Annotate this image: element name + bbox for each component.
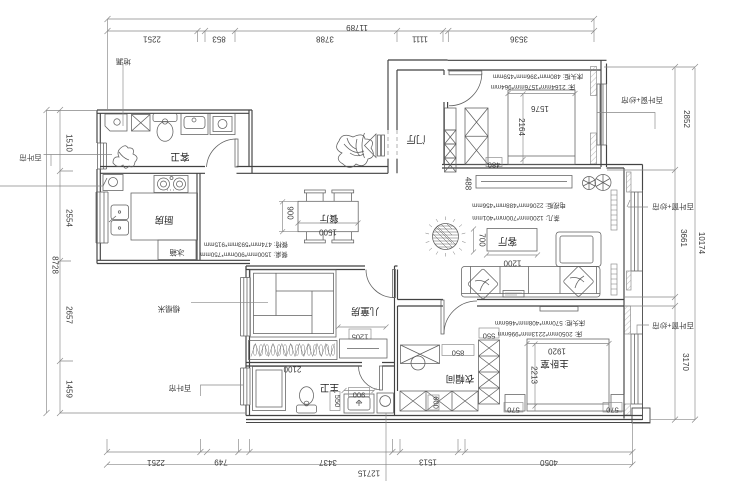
svg-text:2251: 2251 [143,35,161,44]
svg-text:2251: 2251 [147,458,165,467]
svg-text:12715: 12715 [357,469,380,478]
svg-text:2213: 2213 [530,366,539,384]
svg-text:900: 900 [353,391,366,400]
svg-text:10174: 10174 [697,232,706,255]
svg-text:2657: 2657 [65,306,74,324]
svg-text:门厅: 门厅 [406,133,426,145]
svg-text:客厅: 客厅 [498,235,518,247]
svg-text:百叶帘: 百叶帘 [19,153,42,163]
svg-text:1205: 1205 [352,333,369,342]
svg-text:550: 550 [333,395,342,408]
svg-text:百叶窗+纱帘: 百叶窗+纱帘 [652,202,694,212]
svg-text:床: 2050mm*2213mm*996mm: 床: 2050mm*2213mm*996mm [498,330,583,339]
svg-text:1459: 1459 [65,380,74,398]
svg-text:儿童房: 儿童房 [351,305,380,317]
svg-text:700: 700 [478,233,487,247]
svg-text:2164: 2164 [517,118,526,136]
svg-text:3437: 3437 [319,458,337,467]
svg-text:550: 550 [483,332,496,341]
svg-text:3788: 3788 [316,35,334,44]
svg-text:3170: 3170 [681,353,690,371]
svg-text:厨房: 厨房 [154,214,173,226]
svg-text:床: 2164mm*1576mm*964mm: 床: 2164mm*1576mm*964mm [491,83,576,92]
svg-text:百叶窗+纱帘: 百叶窗+纱帘 [621,96,663,106]
svg-text:1576: 1576 [531,104,549,113]
svg-text:餐椅: 474mm*593mm*915mm: 餐椅: 474mm*593mm*915mm [204,241,288,250]
svg-text:488: 488 [464,177,473,191]
svg-text:茶几: 1200mm*700mm*401mm: 茶几: 1200mm*700mm*401mm [472,214,560,223]
svg-text:电视柜: 2206mm*488mm*456mm: 电视柜: 2206mm*488mm*456mm [472,202,566,211]
svg-text:衣帽间: 衣帽间 [446,373,475,385]
svg-text:百叶窗+纱帘: 百叶窗+纱帘 [652,321,694,331]
svg-text:3536: 3536 [510,35,528,44]
svg-text:百叶帘: 百叶帘 [169,384,192,394]
svg-text:2852: 2852 [682,110,691,128]
svg-text:11789: 11789 [346,23,368,32]
svg-text:冰箱: 冰箱 [169,248,184,258]
svg-text:1513: 1513 [419,458,437,467]
svg-text:600: 600 [432,396,441,409]
svg-text:853: 853 [212,35,226,44]
svg-text:1111: 1111 [411,35,428,44]
svg-text:客卫: 客卫 [170,151,190,163]
svg-text:床头柜: 570mm*408mm*466mm: 床头柜: 570mm*408mm*466mm [495,319,585,328]
svg-text:570: 570 [606,406,619,415]
svg-text:749: 749 [214,458,228,467]
svg-text:850: 850 [452,349,465,358]
svg-text:480: 480 [488,161,501,170]
svg-text:1500: 1500 [319,228,337,237]
svg-text:1510: 1510 [65,134,74,152]
svg-text:4050: 4050 [540,458,558,467]
svg-text:900: 900 [286,206,295,220]
svg-text:3661: 3661 [679,229,688,247]
svg-text:榻榻米: 榻榻米 [157,305,180,315]
svg-text:地漏: 地漏 [116,57,131,67]
svg-text:1920: 1920 [548,347,566,356]
svg-text:主卧室: 主卧室 [540,358,569,370]
svg-text:2554: 2554 [65,209,74,227]
svg-text:床头柜: 480mm*396mm*459mm: 床头柜: 480mm*396mm*459mm [493,73,583,82]
svg-text:8728: 8728 [51,256,60,274]
svg-text:570: 570 [507,406,520,415]
svg-text:餐桌: 1500mm*900mm*750mm: 餐桌: 1500mm*900mm*750mm [200,251,288,260]
